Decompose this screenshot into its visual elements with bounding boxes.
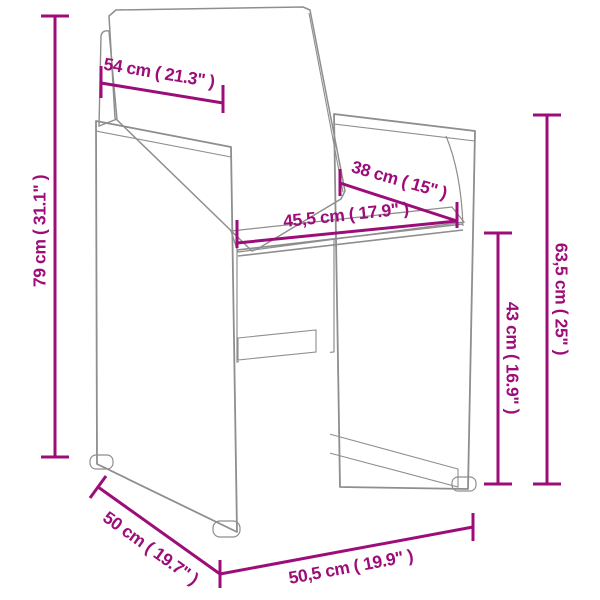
dimension-seat-width: 45,5 cm ( 17.9" ) — [237, 198, 457, 248]
dimension-seat-depth-label: 38 cm ( 15" ) — [349, 156, 449, 202]
dimension-overall-height: 79 cm ( 31.1" ) — [30, 16, 69, 457]
right-armrest-top-rim — [334, 114, 475, 141]
front-apron — [237, 239, 334, 362]
dimension-seat-height: 43 cm ( 16.9" ) — [484, 233, 522, 484]
left-armrest-top-rim — [96, 121, 231, 157]
under-seat-opening — [239, 350, 330, 528]
dimension-overall-depth-label: 50 cm ( 19.7" ) — [99, 507, 202, 588]
dimension-backrest-width: 54 cm ( 21.3" ) — [101, 54, 223, 113]
left-side-panel — [96, 121, 237, 532]
dimension-seat-height-label: 43 cm ( 16.9" ) — [502, 302, 522, 414]
diagram-canvas: 79 cm ( 31.1" ) 54 cm ( 21.3" ) 45,5 cm … — [0, 0, 600, 600]
dimension-backrest-height: 63,5 cm ( 25" ) — [533, 115, 571, 484]
bottom-rail-right — [322, 432, 458, 487]
right-armrest-inner-curve — [446, 136, 463, 226]
dimension-overall-width-label: 50,5 cm ( 19.9" ) — [287, 545, 415, 588]
back-cushion-piping — [309, 13, 343, 192]
dimension-backrest-height-label: 63,5 cm ( 25" ) — [551, 243, 571, 355]
chair-illustration — [90, 7, 476, 537]
dimension-overall-height-label: 79 cm ( 31.1" ) — [30, 175, 50, 287]
foot-front-left — [213, 521, 240, 537]
dimension-overall-width: 50,5 cm ( 19.9" ) — [220, 513, 473, 588]
product-dimension-diagram: 79 cm ( 31.1" ) 54 cm ( 21.3" ) 45,5 cm … — [0, 0, 600, 600]
